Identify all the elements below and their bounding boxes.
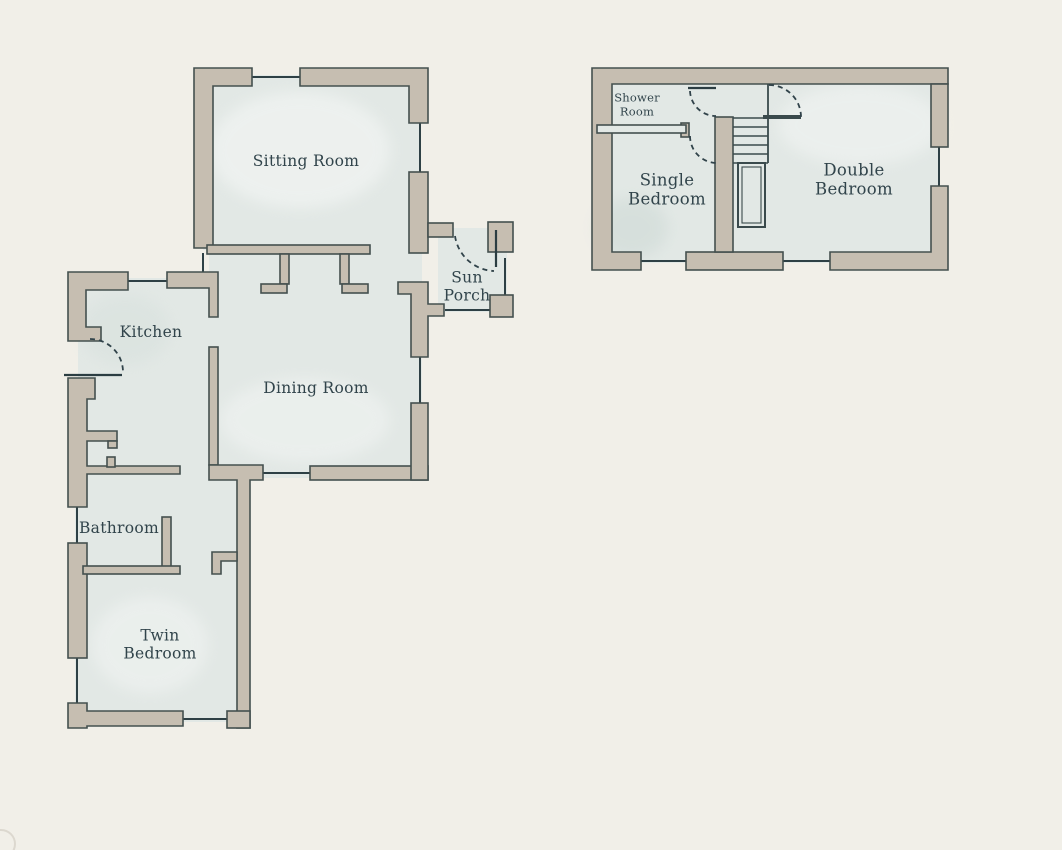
shower-room-partition [597, 125, 686, 133]
room-label-double-bedroom: Double Bedroom [807, 161, 902, 200]
room-label-kitchen: Kitchen [120, 323, 183, 341]
room-label-shower-room: Shower Room [608, 91, 666, 118]
room-label-sun-porch: Sun Porch [437, 269, 497, 306]
room-label-bathroom: Bathroom [79, 519, 159, 537]
room-label-dining-room: Dining Room [263, 379, 369, 397]
floorplan-canvas: Sitting Room Sun Porch Kitchen Dining Ro… [0, 0, 1062, 850]
floorplan-drawing [0, 0, 1062, 850]
room-label-twin-bedroom: Twin Bedroom [118, 627, 202, 664]
room-label-single-bedroom: Single Bedroom [617, 171, 717, 210]
room-label-sitting-room: Sitting Room [253, 152, 359, 170]
